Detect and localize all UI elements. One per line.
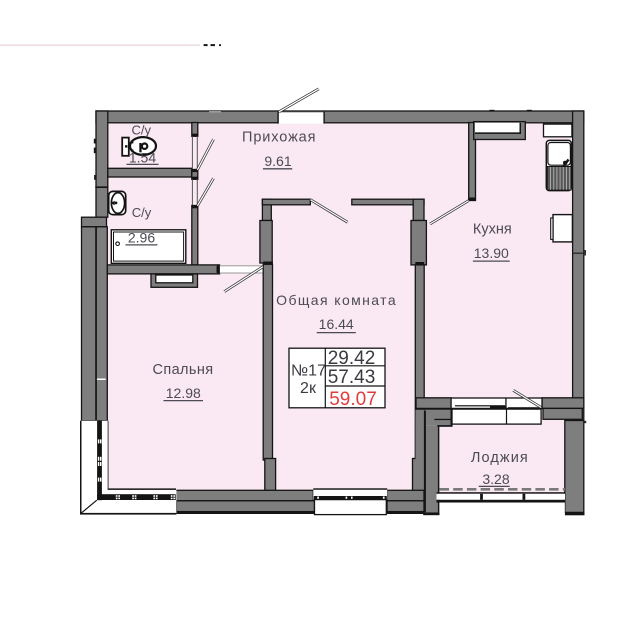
svg-text:Спальня: Спальня (152, 362, 213, 378)
svg-text:3.28: 3.28 (482, 471, 509, 487)
svg-text:29.42: 29.42 (328, 348, 376, 369)
svg-text:2.96: 2.96 (128, 229, 155, 245)
svg-text:Лоджия: Лоджия (471, 450, 529, 466)
svg-text:С/у: С/у (132, 205, 152, 220)
svg-text:57.43: 57.43 (328, 367, 376, 388)
svg-text:13.90: 13.90 (474, 245, 509, 261)
svg-text:Прихожая: Прихожая (242, 130, 316, 146)
svg-text:16.44: 16.44 (319, 316, 354, 332)
svg-text:№17: №17 (291, 363, 326, 380)
svg-text:С/у: С/у (132, 122, 152, 137)
svg-text:1.54: 1.54 (129, 149, 156, 165)
svg-text:Кухня: Кухня (473, 222, 512, 238)
svg-text:12.98: 12.98 (166, 385, 201, 401)
svg-text:9.61: 9.61 (264, 153, 291, 169)
svg-text:Общая комната: Общая комната (276, 292, 397, 308)
svg-text:2к: 2к (300, 380, 317, 397)
svg-text:59.07: 59.07 (329, 389, 377, 410)
